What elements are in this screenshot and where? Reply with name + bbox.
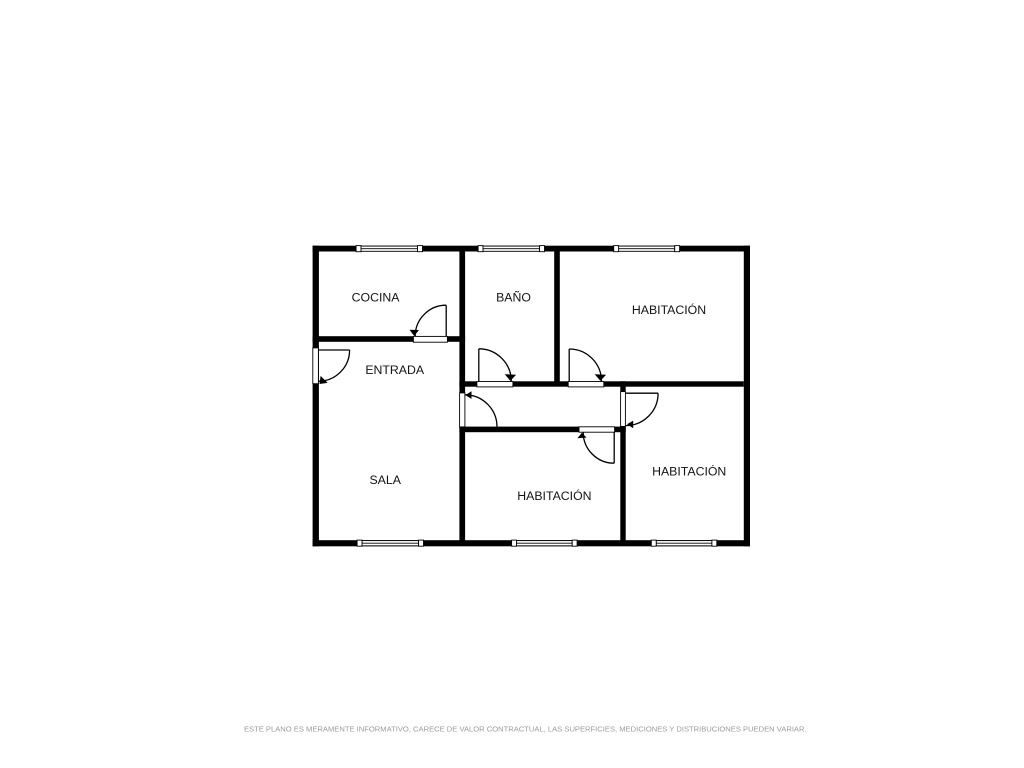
svg-text:BAÑO: BAÑO — [496, 291, 531, 305]
svg-text:SALA: SALA — [369, 473, 401, 487]
svg-text:ESTE PLANO ES MERAMENTE INFORM: ESTE PLANO ES MERAMENTE INFORMATIVO, CAR… — [244, 725, 807, 734]
svg-text:ENTRADA: ENTRADA — [365, 363, 425, 377]
svg-text:COCINA: COCINA — [352, 290, 401, 304]
svg-text:HABITACIÓN: HABITACIÓN — [632, 302, 706, 317]
svg-text:HABITACIÓN: HABITACIÓN — [517, 488, 591, 503]
svg-text:HABITACIÓN: HABITACIÓN — [652, 463, 726, 478]
